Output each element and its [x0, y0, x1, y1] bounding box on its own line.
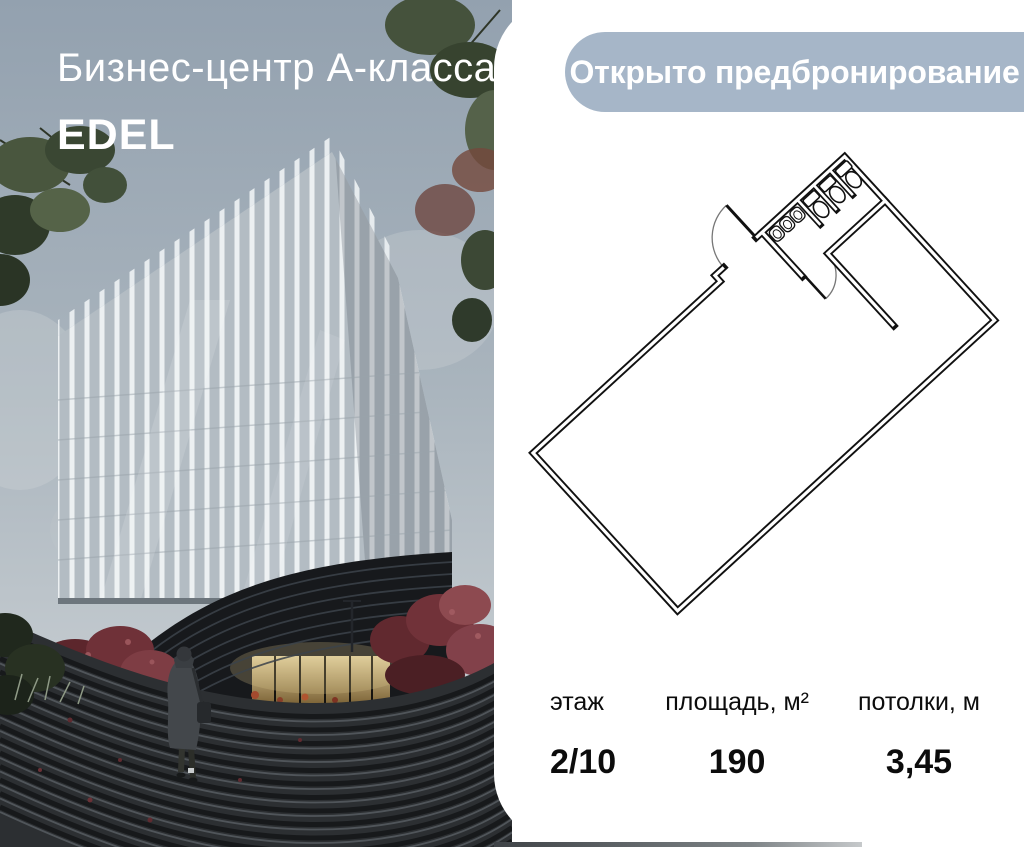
- stat-area-label: площадь, м²: [665, 688, 809, 717]
- listing-screenshot: Бизнес-центр А-класса EDEL Открыто предб…: [0, 0, 1024, 847]
- building-subtitle: Бизнес-центр А-класса: [57, 46, 496, 91]
- stat-ceiling-label: потолки, м: [858, 688, 980, 717]
- floor-plan: [514, 150, 1014, 630]
- entrance-door-leaf: [726, 205, 756, 237]
- stat-area: площадь, м² 190: [665, 688, 809, 782]
- stat-ceiling: потолки, м 3,45: [858, 688, 980, 782]
- wc-door-arc: [804, 254, 849, 299]
- building-name: EDEL: [57, 111, 496, 160]
- wc-door-leaf: [804, 275, 826, 299]
- stat-area-value: 190: [665, 743, 809, 782]
- stat-ceiling-value: 3,45: [858, 743, 980, 782]
- listing-card[interactable]: Открыто предбронирование: [494, 0, 1024, 842]
- stats-row: этаж 2/10 площадь, м² 190 потолки, м 3,4…: [494, 688, 1024, 782]
- photo-title-block: Бизнес-центр А-класса EDEL: [57, 46, 496, 160]
- stat-floor-label: этаж: [550, 688, 616, 717]
- photo-sliver: [494, 842, 862, 847]
- floor-plan-drawing: [514, 150, 1014, 630]
- stat-floor-value: 2/10: [550, 743, 616, 782]
- status-badge-label: Открыто предбронирование: [569, 54, 1019, 91]
- wc-area: [768, 160, 866, 253]
- building-photo: Бизнес-центр А-класса EDEL: [0, 0, 512, 847]
- stat-floor: этаж 2/10: [550, 688, 616, 782]
- entrance-door-arc: [694, 205, 756, 267]
- walls: [528, 157, 995, 611]
- status-badge: Открыто предбронирование: [565, 32, 1024, 112]
